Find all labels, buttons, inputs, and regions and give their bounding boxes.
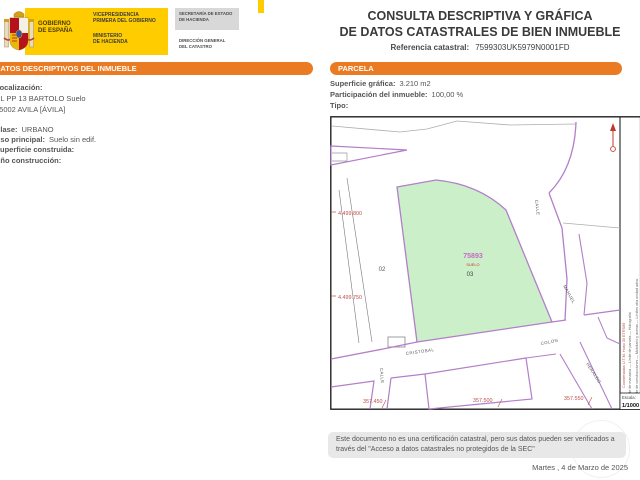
uso-value: Suelo sin edif.: [49, 135, 96, 144]
superficie-construida-label: Superficie construida:: [0, 145, 74, 154]
cadastral-document: GOBIERNO DE ESPAÑA VICEPRESIDENCIA PRIME…: [0, 0, 640, 480]
page-title: CONSULTA DESCRIPTIVA Y GRÁFICA DE DATOS …: [330, 8, 630, 40]
document-date: Martes , 4 de Marzo de 2025: [330, 463, 628, 472]
tipo-label: Tipo:: [330, 101, 348, 110]
utm-note: Coordenadas U.T.M. Huso 30 ETRS89: [622, 323, 626, 388]
uso-label: Uso principal:: [0, 135, 45, 144]
parcel-use-label: SUELO: [466, 262, 479, 267]
anio-construccion-label: Año construcción:: [0, 156, 61, 165]
secretaria-text: SECRETARÍA DE ESTADO DE HACIENDA: [179, 11, 232, 22]
disclaimer-text: Este documento no es una certificación c…: [336, 436, 615, 453]
disclaimer-box: Este documento no es una certificación c…: [328, 432, 626, 458]
scale-value: 1/1000: [622, 403, 639, 409]
map-legend-col2: — Límite de construcciones — Mobiliario …: [635, 278, 639, 404]
spain-coat-of-arms-icon: [3, 8, 35, 55]
logo-vicepresidencia-text: VICEPRESIDENCIA PRIMERA DEL GOBIERNO: [93, 12, 156, 24]
parcela-panel: Superficie gráfica:3.210 m2 Participació…: [330, 78, 630, 111]
inmueble-panel: Localización: CL PP 13 BARTOLO Suelo 050…: [0, 82, 315, 166]
coord-label-y1: 4.499.800: [338, 211, 362, 217]
superficie-grafica-label: Superficie gráfica:: [330, 79, 395, 88]
cadastral-map: 4.499.800 4.499.750 357.450 357.500 357.…: [330, 116, 640, 410]
participacion-label: Participación del inmueble:: [330, 90, 428, 99]
section-header-inmueble-label: DATOS DESCRIPTIVOS DEL INMUEBLE: [0, 64, 137, 73]
parcel-code-label: 03: [467, 272, 474, 278]
coord-label-x1: 357.450: [363, 399, 383, 405]
coord-label-x2: 357.500: [473, 398, 493, 404]
referencia-catastral: Referencia catastral:7599303UK5979N0001F…: [330, 43, 630, 52]
flag-strip: [258, 0, 264, 13]
map-legend-col1: — Límite de manzana — Límite de parcela …: [628, 312, 632, 404]
referencia-value: 7599303UK5979N0001FD: [475, 43, 569, 52]
municipio-value: 05002 AVILA [ÁVILA]: [0, 105, 65, 114]
superficie-grafica-value: 3.210 m2: [399, 79, 430, 88]
coord-label-y2: 4.499.750: [338, 295, 362, 301]
scale-label: Escala:: [622, 395, 636, 400]
coord-label-x3: 357.550: [564, 396, 584, 402]
logo-gobierno-text: GOBIERNO DE ESPAÑA: [38, 21, 73, 35]
logo-ministerio-text: MINISTERIO DE HACIENDA: [93, 33, 128, 45]
section-header-inmueble: DATOS DESCRIPTIVOS DEL INMUEBLE: [0, 62, 313, 75]
direccion-value: CL PP 13 BARTOLO Suelo: [0, 94, 86, 103]
section-header-parcela-label: PARCELA: [338, 64, 374, 73]
localizacion-label: Localización:: [0, 83, 43, 92]
clase-value: URBANO: [22, 125, 54, 134]
direccion-catastro-text: DIRECCIÓN GENERAL DEL CATASTRO: [179, 38, 225, 49]
participacion-value: 100,00 %: [432, 90, 464, 99]
section-header-parcela: PARCELA: [330, 62, 622, 75]
clase-label: Clase:: [0, 125, 18, 134]
parcel-number-label: 75893: [463, 253, 483, 260]
referencia-label: Referencia catastral:: [390, 43, 469, 52]
adjacent-parcel-label: 02: [379, 267, 386, 273]
scale-box: Escala: 1/1000: [620, 393, 640, 410]
